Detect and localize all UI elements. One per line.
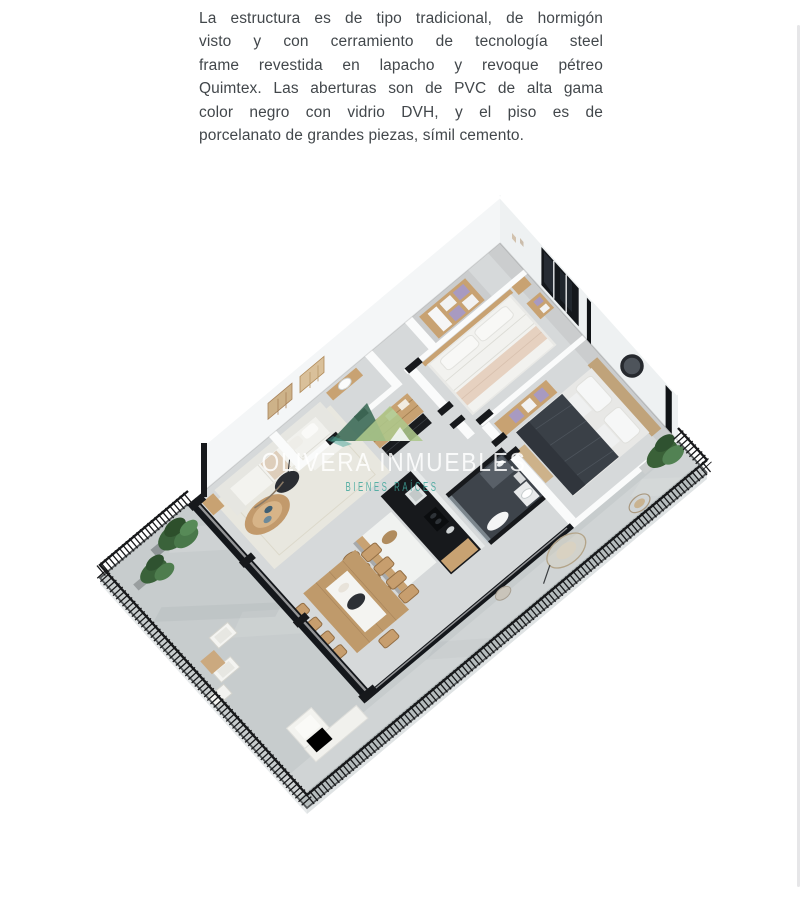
scrollbar-track[interactable] [797,25,800,887]
watermark-brand: OLIVERA INMUEBLES [262,447,527,477]
description-line: visto y con cerramiento de tecnología st… [199,30,603,53]
watermark-tagline: BIENES RAÍCES [346,479,439,494]
property-description: La estructura es de tipo tradicional, de… [199,7,603,147]
floorplan-render: OLIVERA INMUEBLES BIENES RAÍCES [0,160,802,900]
description-line: La estructura es de tipo tradicional, de… [199,7,603,30]
listing-page: La estructura es de tipo tradicional, de… [0,0,802,900]
round-mirror [622,356,642,376]
property-3d-floorplan-image[interactable]: OLIVERA INMUEBLES BIENES RAÍCES [0,160,802,900]
description-line: porcelanato de grandes piezas, símil cem… [199,124,603,147]
description-line: frame revestida en lapacho y revoque pét… [199,54,603,77]
description-line: color negro con vidrio DVH, y el piso es… [199,101,603,124]
description-line: Quimtex. Las aberturas son de PVC de alt… [199,77,603,100]
window-slot [587,298,591,345]
window-slot [666,385,672,434]
corner-column [201,443,207,497]
